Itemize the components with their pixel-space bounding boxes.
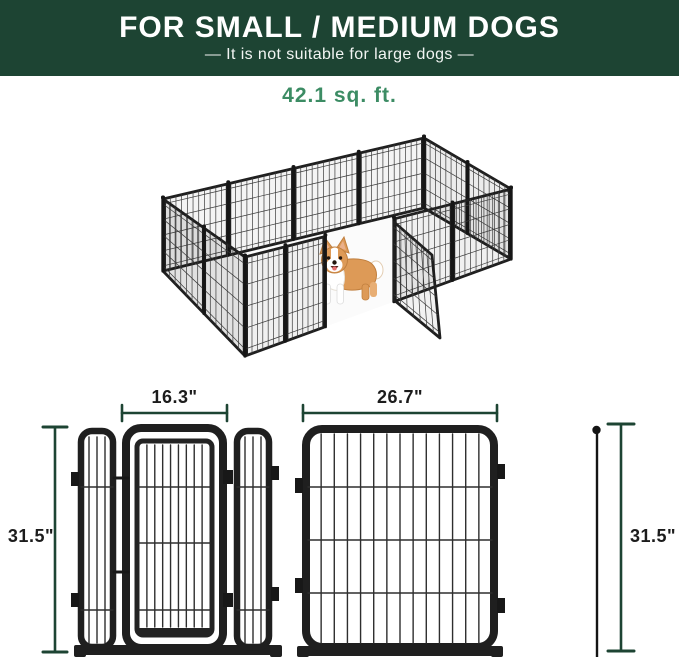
header-banner: FOR SMALL / MEDIUM DOGS — It is not suit… (0, 0, 679, 76)
height-label-right: 31.5" (630, 527, 679, 545)
panel-diagrams (0, 383, 679, 657)
dimension-diagram (0, 383, 679, 657)
measure-lines (43, 405, 634, 652)
door-panel-width-label: 16.3" (122, 388, 227, 406)
area-size-label: 42.1 sq. ft. (0, 84, 679, 108)
large-panel-diagram (295, 429, 505, 657)
banner-title: FOR SMALL / MEDIUM DOGS (119, 13, 560, 43)
playpen-illustration (0, 110, 679, 383)
banner-subtitle: — It is not suitable for large dogs — (205, 45, 474, 64)
large-panel-width-label: 26.7" (303, 388, 497, 406)
product-infographic: FOR SMALL / MEDIUM DOGS — It is not suit… (0, 0, 679, 657)
panel-edge-view (592, 426, 600, 657)
door-panel-diagram (71, 428, 282, 657)
height-label-left: 31.5" (4, 527, 54, 545)
playpen-figure (0, 110, 679, 383)
